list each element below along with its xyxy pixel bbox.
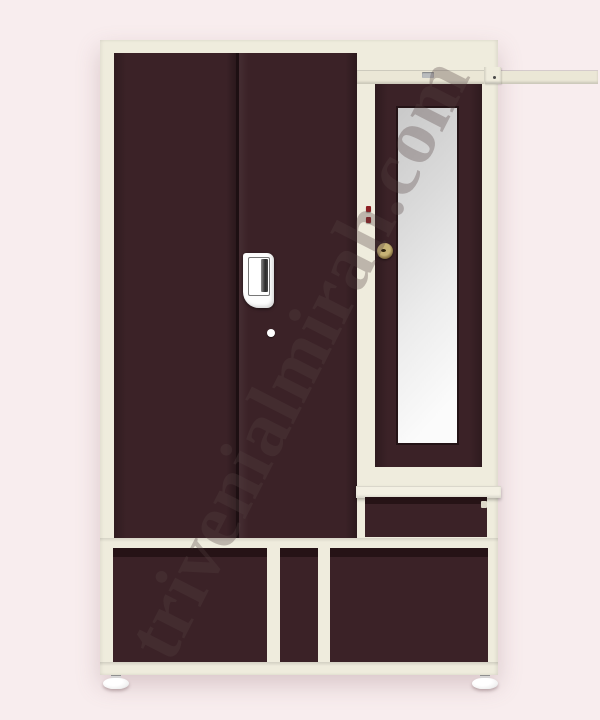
storage-drawer-left xyxy=(113,548,267,662)
cornice-vent-icon xyxy=(422,72,434,78)
hinge-top-icon xyxy=(366,206,371,212)
handle-recess xyxy=(248,257,270,296)
dresser-drawer xyxy=(365,497,487,537)
storage-drawer-right xyxy=(330,548,488,662)
cap-screw-icon xyxy=(493,76,496,79)
door-handle xyxy=(243,253,274,308)
foot-base xyxy=(472,678,498,689)
cornice-strip xyxy=(357,71,598,84)
storage-drawer-middle xyxy=(280,548,318,662)
product-photo: trivenialmirah.com xyxy=(0,0,600,720)
base-rail-shadow xyxy=(100,662,498,666)
handle-grip-slot xyxy=(261,259,268,292)
almirah-cabinet xyxy=(100,40,498,675)
mirror-lock-knob xyxy=(377,243,393,259)
mid-rail-shadow xyxy=(100,538,498,542)
dressing-mirror xyxy=(396,106,459,445)
foot-base xyxy=(103,678,129,689)
foot-right xyxy=(472,675,498,690)
keyhole-icon xyxy=(267,329,275,337)
cornice-end-cap xyxy=(484,67,501,84)
left-door-panel xyxy=(114,53,236,538)
hinge-bottom-icon xyxy=(366,217,371,223)
foot-left xyxy=(103,675,129,690)
drawer-latch xyxy=(481,501,487,508)
